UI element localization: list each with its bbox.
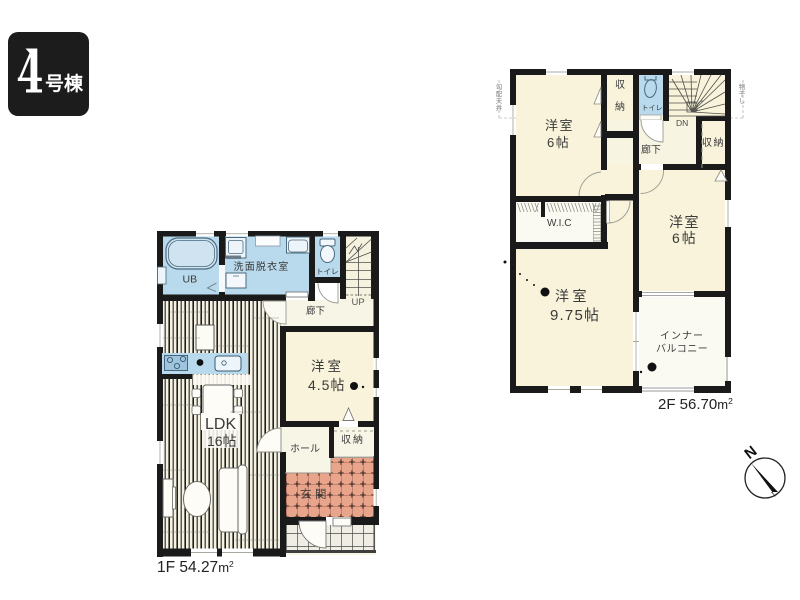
svg-text:洗面脱衣室: 洗面脱衣室: [234, 260, 290, 273]
svg-text:ホール: ホール: [290, 443, 320, 455]
svg-text:トイレ: トイレ: [642, 105, 663, 112]
svg-text:4.5帖: 4.5帖: [308, 377, 345, 393]
svg-text:9.75帖: 9.75帖: [550, 307, 600, 324]
svg-text:号棟: 号棟: [45, 72, 84, 95]
svg-text:干: 干: [739, 90, 746, 98]
svg-text:廊下: 廊下: [641, 143, 661, 156]
svg-text:物: 物: [739, 82, 746, 91]
svg-text:玄関: 玄関: [300, 487, 330, 501]
svg-text:6帖: 6帖: [547, 135, 570, 150]
svg-text:納: 納: [615, 100, 625, 113]
svg-text:バルコニー: バルコニー: [656, 343, 708, 355]
svg-text:UP: UP: [352, 297, 365, 308]
svg-text:収納: 収納: [702, 136, 725, 149]
svg-text:し: し: [739, 97, 746, 105]
svg-text:2F 56.70m2: 2F 56.70m2: [658, 396, 733, 413]
svg-text:1F 54.27m2: 1F 54.27m2: [157, 559, 234, 576]
svg-text:16帖: 16帖: [207, 433, 237, 449]
svg-text:6帖: 6帖: [672, 230, 698, 246]
svg-text:トイレ: トイレ: [316, 267, 339, 276]
svg-text:洋室: 洋室: [669, 214, 700, 230]
svg-text:UB: UB: [183, 274, 198, 286]
svg-text:洋室: 洋室: [311, 358, 344, 374]
svg-text:W.I.C: W.I.C: [547, 218, 571, 229]
svg-text:廊下: 廊下: [306, 305, 325, 317]
svg-text:収納: 収納: [341, 433, 365, 446]
svg-text:洋室: 洋室: [545, 118, 574, 133]
svg-text:LDK: LDK: [205, 416, 236, 433]
svg-text:収: 収: [615, 79, 625, 91]
svg-text:洋室: 洋室: [555, 288, 590, 304]
svg-text:インナー: インナー: [660, 330, 704, 342]
svg-text:DN: DN: [676, 118, 688, 128]
